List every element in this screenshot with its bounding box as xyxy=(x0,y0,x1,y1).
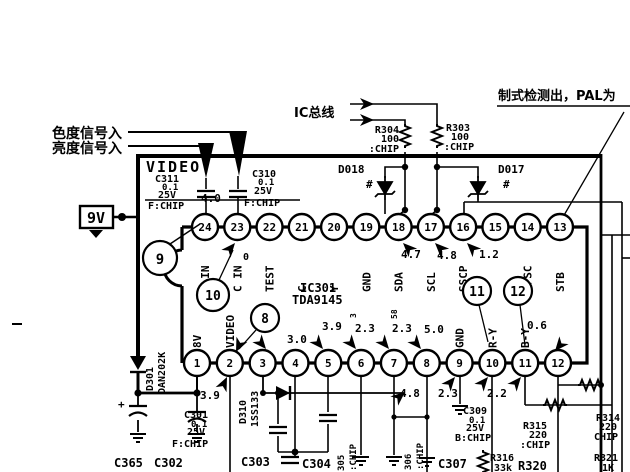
ic-pin-14-number: 14 xyxy=(521,221,535,234)
r314-pkg: CHIP xyxy=(594,432,618,443)
ic-pin-13-label: STB xyxy=(554,272,567,292)
voltage-pin17: 4.8 xyxy=(437,249,457,262)
r303-pkg: :CHIP xyxy=(444,142,474,153)
ic-pin-16-number: 16 xyxy=(457,221,471,234)
ic-pin-20-number: 20 xyxy=(327,221,340,234)
luma-in-label: 亮度信号入 xyxy=(52,140,122,157)
test-point-8: 8 xyxy=(261,312,269,327)
ic-pin-13-number: 13 xyxy=(553,221,566,234)
ic-pin-4-number: 4 xyxy=(292,357,299,370)
ic-pin-10: 10R-Y xyxy=(479,328,505,376)
c306-pkg: :CHIP xyxy=(416,442,426,470)
c305-pkg: :CHIP xyxy=(349,443,359,471)
r304-pkg: :CHIP xyxy=(369,144,399,155)
r320-ref: R320 xyxy=(518,459,547,472)
ic-pin-10-number: 10 xyxy=(486,357,499,370)
ic-pin-7-number: 7 xyxy=(391,357,398,370)
cap-c303-symbol xyxy=(269,427,287,433)
ic-pin-6: 6 xyxy=(348,350,374,376)
ic-pin-15-number: 15 xyxy=(489,221,502,234)
d017-hash: # xyxy=(503,178,510,191)
ic-pin-11-number: 11 xyxy=(519,357,533,370)
ic-pin-7: 7 xyxy=(381,350,407,376)
supply-arrow-icon xyxy=(89,230,103,238)
c301-pkg: F:CHIP xyxy=(172,439,208,450)
ic-pin-21-number: 21 xyxy=(295,221,309,234)
r316-value: 33k xyxy=(494,463,512,472)
ic-pin-5: 5 xyxy=(315,350,341,376)
diode-d310-symbol xyxy=(276,386,290,400)
test-point-12: 12 xyxy=(510,285,526,300)
voltage-pin24: 4.0 xyxy=(201,192,221,205)
ic-pin-8: 8 xyxy=(414,350,440,376)
c307-ref: C307 xyxy=(438,457,467,471)
c310-rating: 25V xyxy=(254,186,272,197)
d301-part: DAN202K xyxy=(157,352,168,394)
ic-pin-12-number: 12 xyxy=(551,357,564,370)
r315-pkg: :CHIP xyxy=(520,440,550,451)
ic-pin-1-label: 8V xyxy=(191,334,204,348)
ground-c365 xyxy=(130,434,146,442)
ic-pin-8-number: 8 xyxy=(423,357,430,370)
c309-pkg: B:CHIP xyxy=(455,433,491,444)
diode-d301-symbol xyxy=(130,356,146,372)
ic-pin-9: 9GND xyxy=(447,328,473,376)
chroma-in-label: 色度信号入 xyxy=(52,125,122,142)
resistor-r316-symbol xyxy=(478,450,488,472)
zener-d017-symbol xyxy=(468,176,488,200)
test-point-9: 9 xyxy=(156,252,164,268)
ic-pin-9-number: 9 xyxy=(456,357,463,370)
ic-pin-9-label: GND xyxy=(454,328,467,348)
mark-3: 3 xyxy=(349,313,358,318)
ic-pin-11: 11B-Y xyxy=(512,328,538,376)
ic-pin-17-number: 17 xyxy=(424,221,437,234)
ic-pin-3: 3 xyxy=(250,350,276,376)
ic-pin-24-number: 24 xyxy=(198,221,212,234)
ic-pin-1-number: 1 xyxy=(194,357,201,370)
ic-pin-23-number: 23 xyxy=(231,221,244,234)
test-point-10: 10 xyxy=(205,289,221,304)
voltage-pin10b: 2.2 xyxy=(487,387,507,400)
voltage-pin8b: 4.8 xyxy=(400,387,420,400)
voltage-pin4: 3.0 xyxy=(287,333,307,346)
voltage-pin9b: 2.3 xyxy=(438,387,458,400)
ic-pin-12: 12 xyxy=(545,350,571,376)
voltage-pin22: 0 xyxy=(243,252,249,263)
ic-pin-23-label: C IN xyxy=(231,266,244,293)
ic-pin-5-number: 5 xyxy=(325,357,332,370)
c365-plus: + xyxy=(118,398,125,411)
voltage-pin5: 3.9 xyxy=(322,320,342,333)
voltage-pin18: 4.7 xyxy=(401,248,421,261)
cap-c310-symbol xyxy=(229,191,247,197)
c365-ref: C365 xyxy=(114,456,143,470)
zener-d018-symbol xyxy=(375,176,395,200)
ic-pin-6-number: 6 xyxy=(358,357,365,370)
voltage-pin6: 2.3 xyxy=(355,322,375,335)
c304-ref: C304 xyxy=(302,457,331,471)
chroma-arrow-down xyxy=(229,131,247,176)
voltage-pin1: 3.9 xyxy=(200,389,220,402)
c310-pkg: F:CHIP xyxy=(244,198,280,209)
system-detect-label: 制式检测出，PAL为 xyxy=(498,88,616,104)
ic-pin-19-label: GND xyxy=(360,272,373,292)
resistor-r304-symbol xyxy=(400,124,410,148)
ic-pin-10-label: R-Y xyxy=(486,328,499,348)
schematic-page: 9V 24Y IN23C IN22TEST21C20Y19GND18SDA17S… xyxy=(0,0,630,472)
ic-pin-4: 4 xyxy=(282,350,308,376)
ic-pin-22-label: TEST xyxy=(264,265,277,292)
supply-9v: 9V xyxy=(80,206,113,238)
c303-ref: C303 xyxy=(241,455,270,469)
voltage-pin8: 5.0 xyxy=(424,323,444,336)
ic-pin-1: 18V xyxy=(184,334,210,376)
voltage-pin7: 2.3 xyxy=(392,322,412,335)
ic-pin-15: 15 xyxy=(482,214,508,240)
ic-pin-2-number: 2 xyxy=(227,357,234,370)
cap-c305-symbol xyxy=(319,415,337,421)
ic-pin-18-number: 18 xyxy=(392,221,405,234)
d301-ref: D301 xyxy=(145,367,156,391)
c311-rating: 25V xyxy=(158,190,176,201)
c306-ref: 306 xyxy=(404,454,414,470)
d017-ref: D017 xyxy=(498,163,525,176)
test-point-11: 11 xyxy=(469,285,485,300)
c305-ref: 305 xyxy=(337,455,347,471)
d310-ref: D310 xyxy=(238,400,249,424)
ic-pin-3-number: 3 xyxy=(259,357,266,370)
cap-c365-symbol xyxy=(129,406,147,416)
ic-part: TDA9145 xyxy=(292,293,343,307)
ic-pin-13: 13STB xyxy=(547,214,573,292)
ic-pin-17-label: SCL xyxy=(425,272,438,292)
r321-value: 1K xyxy=(602,463,614,472)
c302-ref: C302 xyxy=(154,456,183,470)
ic-pin-22-number: 22 xyxy=(263,221,276,234)
ic-pin-2-label: VIDEO xyxy=(224,315,237,348)
ground-pin7 xyxy=(386,457,402,465)
mark-58: 58 xyxy=(390,309,399,319)
supply-9v-label: 9V xyxy=(87,209,105,227)
voltage-pin16: 1.2 xyxy=(479,248,499,261)
ic-pin-19: 19GND xyxy=(353,214,379,292)
voltage-pin11: 0.6 xyxy=(527,319,547,332)
d018-ref: D018 xyxy=(338,163,365,176)
resistor-r303-symbol xyxy=(432,124,442,148)
ic-pin-18-label: SDA xyxy=(393,272,406,292)
c311-pkg: F:CHIP xyxy=(148,201,184,212)
d018-hash: # xyxy=(366,178,373,191)
c301-rating: 25V xyxy=(187,427,205,438)
ic-bus-label: IC总线 xyxy=(294,105,334,121)
cap-c304-symbol xyxy=(281,457,299,463)
ic-pin-22: 22TEST xyxy=(257,214,283,292)
d310-part: 1SS133 xyxy=(250,391,261,427)
ic-pin-19-number: 19 xyxy=(360,221,373,234)
